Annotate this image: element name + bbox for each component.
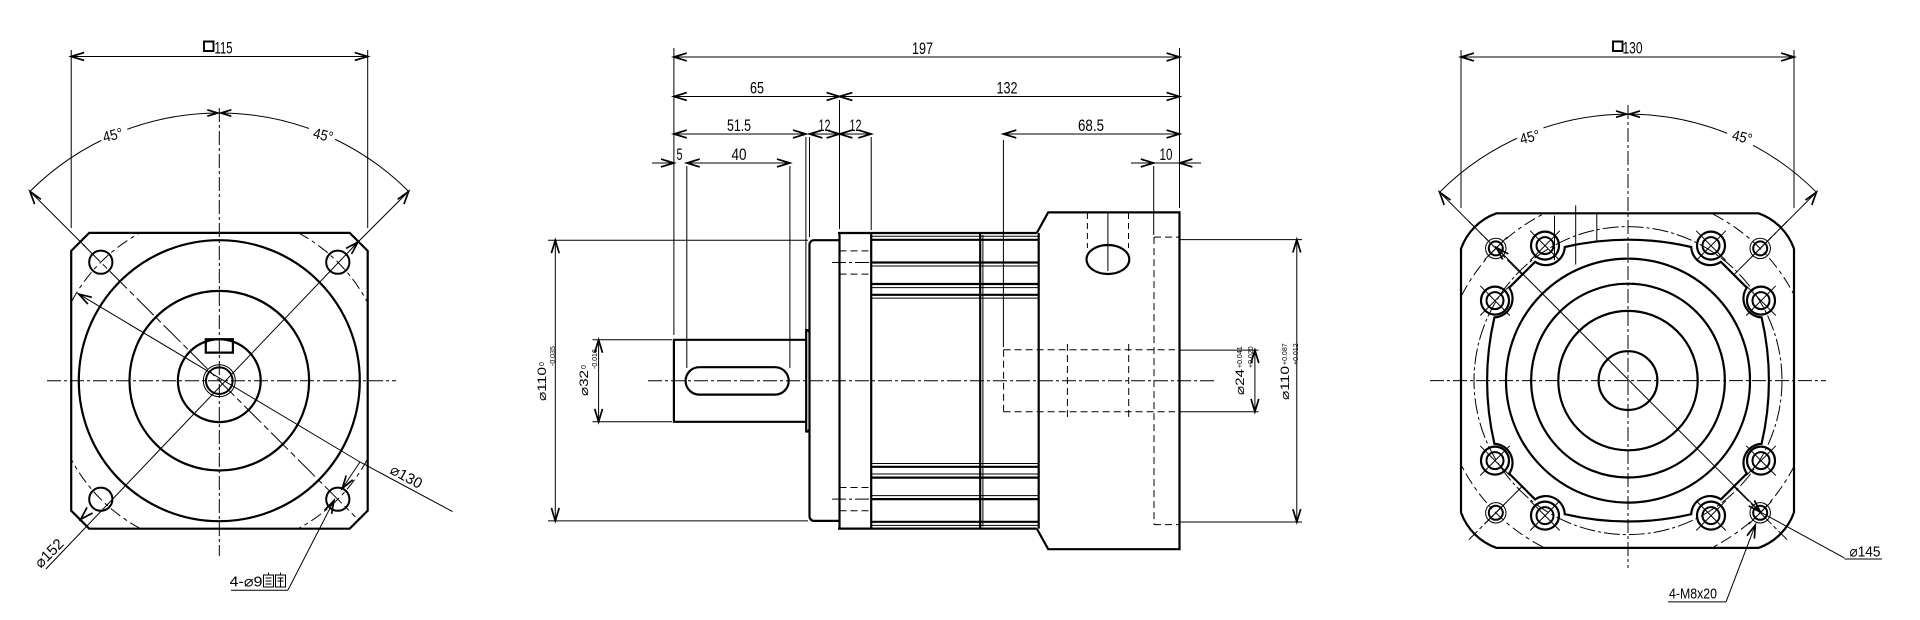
svg-text:51.5: 51.5 xyxy=(727,116,751,135)
svg-text:115: 115 xyxy=(215,39,233,58)
svg-text:4-M8x20: 4-M8x20 xyxy=(1669,586,1717,603)
svg-text:4-⌀9: 4-⌀9 xyxy=(230,574,263,591)
svg-text:-0.035: -0.035 xyxy=(550,346,557,366)
svg-text:+0.041: +0.041 xyxy=(1237,346,1244,368)
svg-text:+0.087: +0.087 xyxy=(1282,343,1289,365)
svg-text:132: 132 xyxy=(997,79,1018,98)
svg-text:65: 65 xyxy=(750,79,764,98)
svg-text:130: 130 xyxy=(1623,39,1643,58)
svg-text:⌀110: ⌀110 xyxy=(535,367,549,401)
svg-text:-0.016: -0.016 xyxy=(592,349,599,369)
svg-text:⌀145: ⌀145 xyxy=(1850,544,1881,561)
svg-text:+0.020: +0.020 xyxy=(1248,346,1255,368)
svg-text:0: 0 xyxy=(581,365,588,369)
svg-text:10: 10 xyxy=(1160,145,1173,164)
svg-text:197: 197 xyxy=(912,39,933,58)
svg-text:40: 40 xyxy=(732,145,747,164)
svg-text:5: 5 xyxy=(677,145,683,164)
svg-text:12: 12 xyxy=(819,116,831,135)
svg-text:⌀24: ⌀24 xyxy=(1233,369,1247,395)
svg-text:⌀110: ⌀110 xyxy=(1278,366,1292,400)
svg-text:⌀32: ⌀32 xyxy=(577,370,591,396)
svg-text:+0.012: +0.012 xyxy=(1293,343,1300,365)
svg-text:68.5: 68.5 xyxy=(1078,116,1104,135)
svg-text:0: 0 xyxy=(539,362,546,366)
svg-text:12: 12 xyxy=(850,116,862,135)
